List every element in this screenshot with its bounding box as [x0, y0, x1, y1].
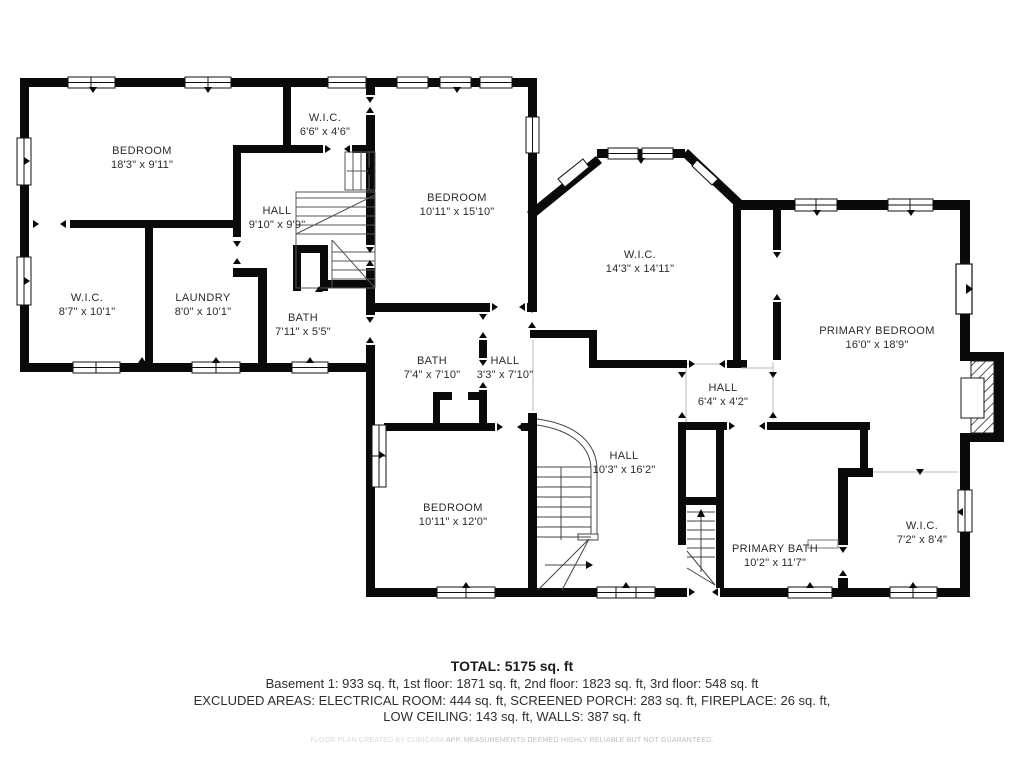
- exterior-door: [956, 264, 973, 314]
- total-area-text: TOTAL: 5175 sq. ft: [0, 656, 1024, 676]
- fireplace: [961, 361, 994, 433]
- excluded-areas-text: EXCLUDED AREAS: ELECTRICAL ROOM: 444 sq.…: [0, 693, 1024, 710]
- stairs-small: [687, 509, 715, 585]
- bath-vanity: [808, 540, 838, 548]
- measurement-ticks: [24, 87, 963, 588]
- disclaimer-left: FLOOR PLAN CREATED BY CUBICASA: [310, 737, 445, 744]
- door-ticks: [33, 97, 924, 596]
- area-summary: TOTAL: 5175 sq. ft Basement 1: 933 sq. f…: [0, 656, 1024, 744]
- excluded-areas-text-2: LOW CEILING: 143 sq. ft, WALLS: 387 sq. …: [0, 709, 1024, 726]
- disclaimer-right: APP. MEASUREMENTS DEEMED HIGHLY RELIABLE…: [446, 737, 714, 744]
- floor-areas-text: Basement 1: 933 sq. ft, 1st floor: 1871 …: [0, 676, 1024, 693]
- stairs-left-hall: [296, 152, 375, 288]
- floor-plan-drawing: [0, 0, 1024, 768]
- stairs-main-hall: [537, 419, 598, 590]
- walls: [20, 78, 1004, 597]
- floor-plan-page: BEDROOM 18'3" x 9'11" W.I.C. 6'6" x 4'6"…: [0, 0, 1024, 768]
- windows: [17, 77, 972, 598]
- disclaimer-text: FLOOR PLAN CREATED BY CUBICASA APP. MEAS…: [0, 737, 1024, 744]
